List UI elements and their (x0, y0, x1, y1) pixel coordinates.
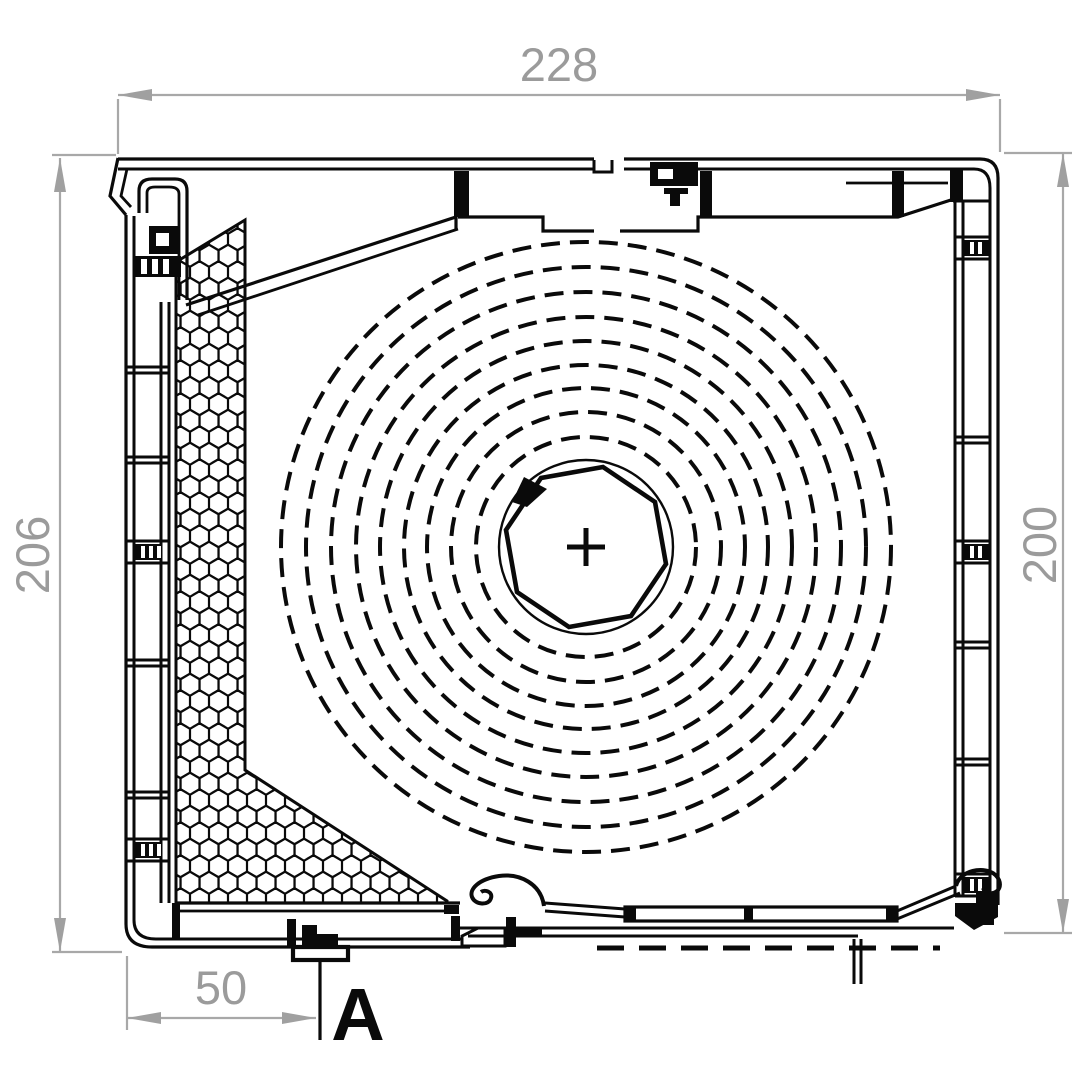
dimension-right: 200 (1004, 153, 1072, 933)
band-bar (892, 171, 904, 217)
extension-lines (52, 155, 122, 952)
dimension-bottom: 50 (127, 956, 316, 1030)
dim-label-width: 228 (520, 38, 598, 91)
right-wall-block-row (955, 541, 990, 563)
clip-tab-v (670, 194, 680, 206)
section-tab (293, 947, 348, 960)
bottom-band-divider (172, 903, 180, 940)
guide-curl-left (471, 876, 544, 906)
latch-bar (287, 919, 296, 947)
top-left-lip-inner (121, 169, 131, 207)
guide-block (976, 892, 998, 904)
latch-step (302, 925, 338, 945)
section-marker: A (320, 960, 385, 1056)
left-wall-divider (126, 792, 169, 798)
arrowhead-right (966, 89, 1000, 101)
technical-drawing: 228 206 200 50 A (0, 0, 1080, 1080)
arrowhead-top (54, 158, 66, 192)
left-wall-divider (126, 660, 169, 666)
arrowhead-top (1057, 153, 1069, 187)
slot-detail (451, 916, 460, 941)
brush-holder (506, 917, 516, 947)
band-bar (950, 169, 963, 202)
dimension-top: 228 (118, 38, 1000, 154)
extension-lines (118, 99, 1000, 154)
arrowhead-left (127, 1012, 161, 1024)
bar-cap (625, 907, 636, 921)
dimension-left: 206 (6, 155, 122, 952)
arrowhead-bottom (54, 918, 66, 952)
section-label: A (331, 973, 384, 1056)
arrowhead-right (282, 1012, 316, 1024)
corner-block-hole (156, 233, 169, 246)
bar-diagonal-right (897, 886, 960, 919)
band-bar (454, 171, 469, 217)
arrowhead-bottom (1057, 899, 1069, 933)
band-bar (700, 171, 712, 217)
slot-detail (444, 905, 459, 914)
left-wall-divider (126, 367, 169, 373)
dim-label-height-left: 206 (6, 516, 59, 594)
arrowhead-left (118, 89, 152, 101)
clip-block (650, 162, 698, 186)
clip-tab-h (664, 188, 688, 194)
right-wall-block-row (955, 237, 990, 259)
top-band-bottom-left (458, 217, 594, 231)
clip-block-hole (658, 169, 673, 179)
closing-bar (625, 907, 897, 921)
left-wall-block-row (133, 256, 181, 277)
dim-label-offset: 50 (195, 961, 247, 1014)
right-wall-divider (955, 437, 990, 443)
bar-cap (886, 907, 897, 921)
bar-cap (744, 907, 753, 921)
bar-diagonal-left (545, 903, 625, 917)
right-wall-divider (955, 642, 990, 648)
left-wall-divider (126, 457, 169, 463)
right-wall-divider (955, 759, 990, 765)
guide-block (983, 903, 994, 925)
shaft-octagon (499, 460, 673, 634)
dim-label-height-right: 200 (1013, 506, 1066, 584)
